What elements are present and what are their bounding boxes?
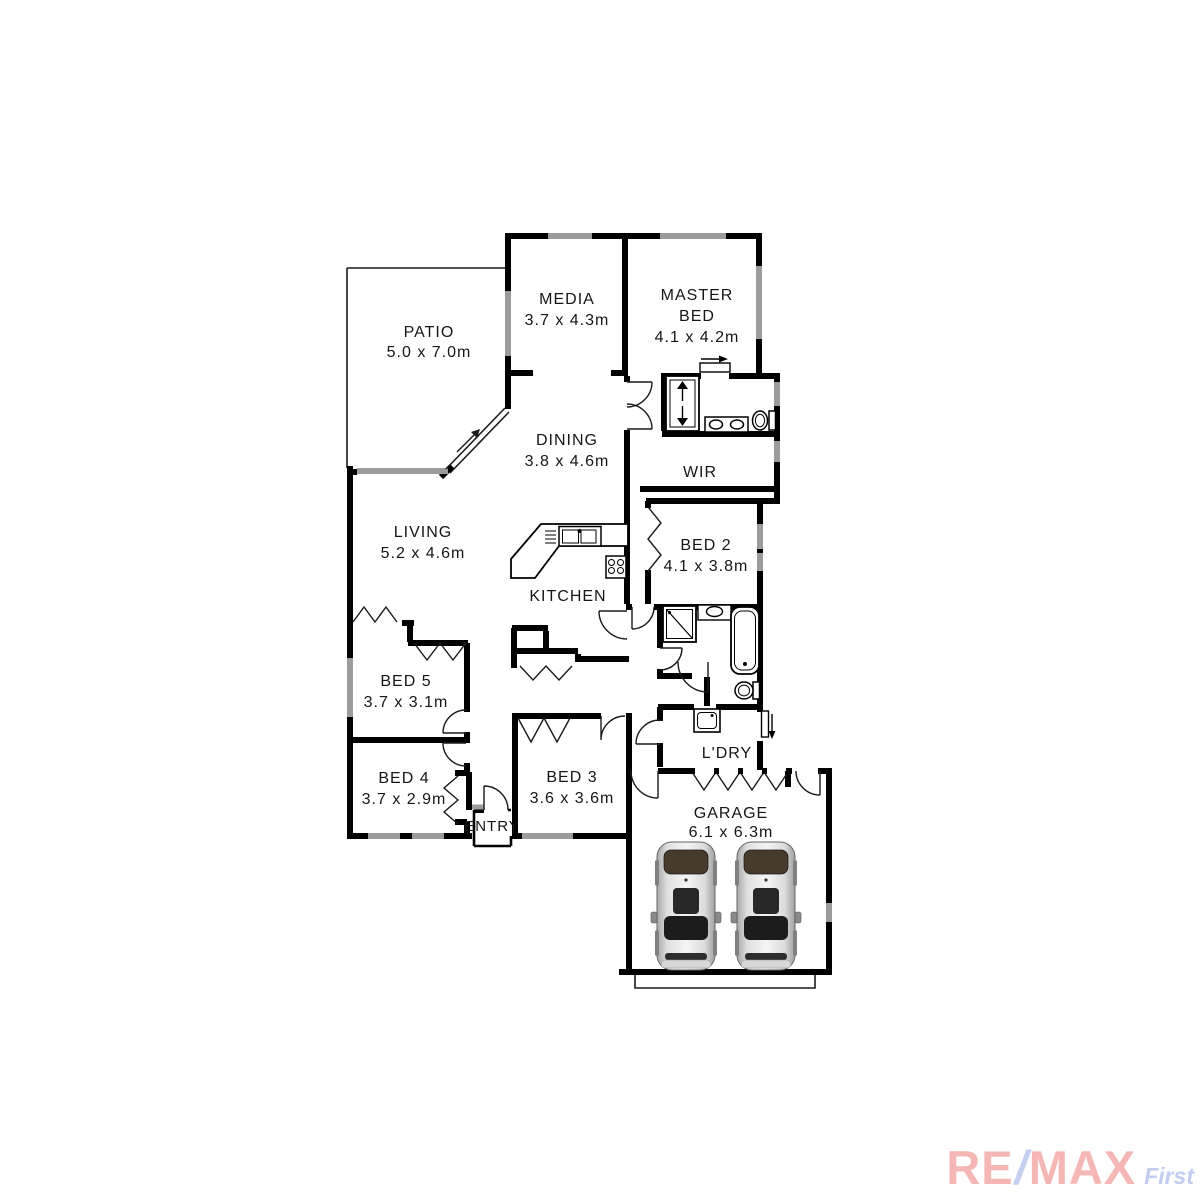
- arrow-icon: [769, 731, 776, 739]
- arrow-icon: [719, 356, 728, 363]
- room-label-bed5: BED 5: [380, 673, 431, 690]
- room-label-media: MEDIA: [539, 291, 595, 308]
- ensuite-vanity-icon: [705, 417, 748, 432]
- room-label-master-1: MASTER: [661, 287, 734, 304]
- floorplan-svg: PATIO 5.0 x 7.0m MEDIA 3.7 x 4.3m MASTER…: [0, 0, 1200, 1200]
- laundry-tub-icon: [694, 709, 720, 732]
- bathroom-vanity-icon: [698, 605, 731, 620]
- patio-sliding-door: [446, 408, 509, 473]
- car-icon: [731, 842, 801, 970]
- room-dims-patio: 5.0 x 7.0m: [387, 344, 472, 361]
- laundry-sliding-door: [762, 711, 776, 739]
- room-label-ldry: L'DRY: [702, 745, 752, 762]
- room-dims-bed5: 3.7 x 3.1m: [364, 694, 449, 711]
- floorplan-page: PATIO 5.0 x 7.0m MEDIA 3.7 x 4.3m MASTER…: [0, 0, 1200, 1200]
- wc-toilet-icon: [735, 682, 760, 699]
- remax-slash-icon: /: [1015, 1141, 1028, 1194]
- ensuite-toilet-icon: [753, 411, 776, 430]
- garage-driveway: [635, 975, 815, 988]
- room-dims-living: 5.2 x 4.6m: [381, 545, 466, 562]
- room-dims-bed3: 3.6 x 3.6m: [530, 790, 615, 807]
- room-dims-master: 4.1 x 4.2m: [655, 329, 740, 346]
- room-dims-bed2: 4.1 x 3.8m: [664, 558, 749, 575]
- ensuite-sliding-door: [700, 356, 730, 373]
- patio-outline: [347, 268, 506, 468]
- room-label-patio: PATIO: [404, 324, 455, 341]
- room-dims-dining: 3.8 x 4.6m: [525, 453, 610, 470]
- stove-icon: [606, 556, 626, 578]
- ensuite-shower-icon: [666, 376, 699, 431]
- bifold-posts: [690, 768, 791, 774]
- bathtub-icon: [731, 607, 759, 674]
- car-icon: [651, 842, 721, 970]
- room-dims-garage: 6.1 x 6.3m: [689, 824, 774, 841]
- room-dims-bed4: 3.7 x 2.9m: [362, 791, 447, 808]
- room-label-garage: GARAGE: [694, 805, 768, 822]
- room-label-living: LIVING: [394, 524, 452, 541]
- bathroom-shower-icon: [663, 606, 696, 642]
- remax-watermark: RE/MAXFirst: [946, 1144, 1194, 1191]
- remax-max-text: MAX: [1029, 1141, 1136, 1194]
- room-label-entry: ENTRY: [464, 818, 520, 835]
- room-label-dining: DINING: [536, 432, 598, 449]
- room-label-bed2: BED 2: [680, 537, 731, 554]
- room-label-bed3: BED 3: [546, 769, 597, 786]
- remax-re-text: RE: [946, 1141, 1013, 1194]
- room-label-wir: WIR: [683, 464, 717, 481]
- remax-first-text: First: [1144, 1163, 1194, 1189]
- room-label-master-2: BED: [679, 308, 715, 325]
- room-label-kitchen: KITCHEN: [529, 588, 606, 605]
- room-dims-media: 3.7 x 4.3m: [525, 312, 610, 329]
- room-label-bed4: BED 4: [378, 770, 429, 787]
